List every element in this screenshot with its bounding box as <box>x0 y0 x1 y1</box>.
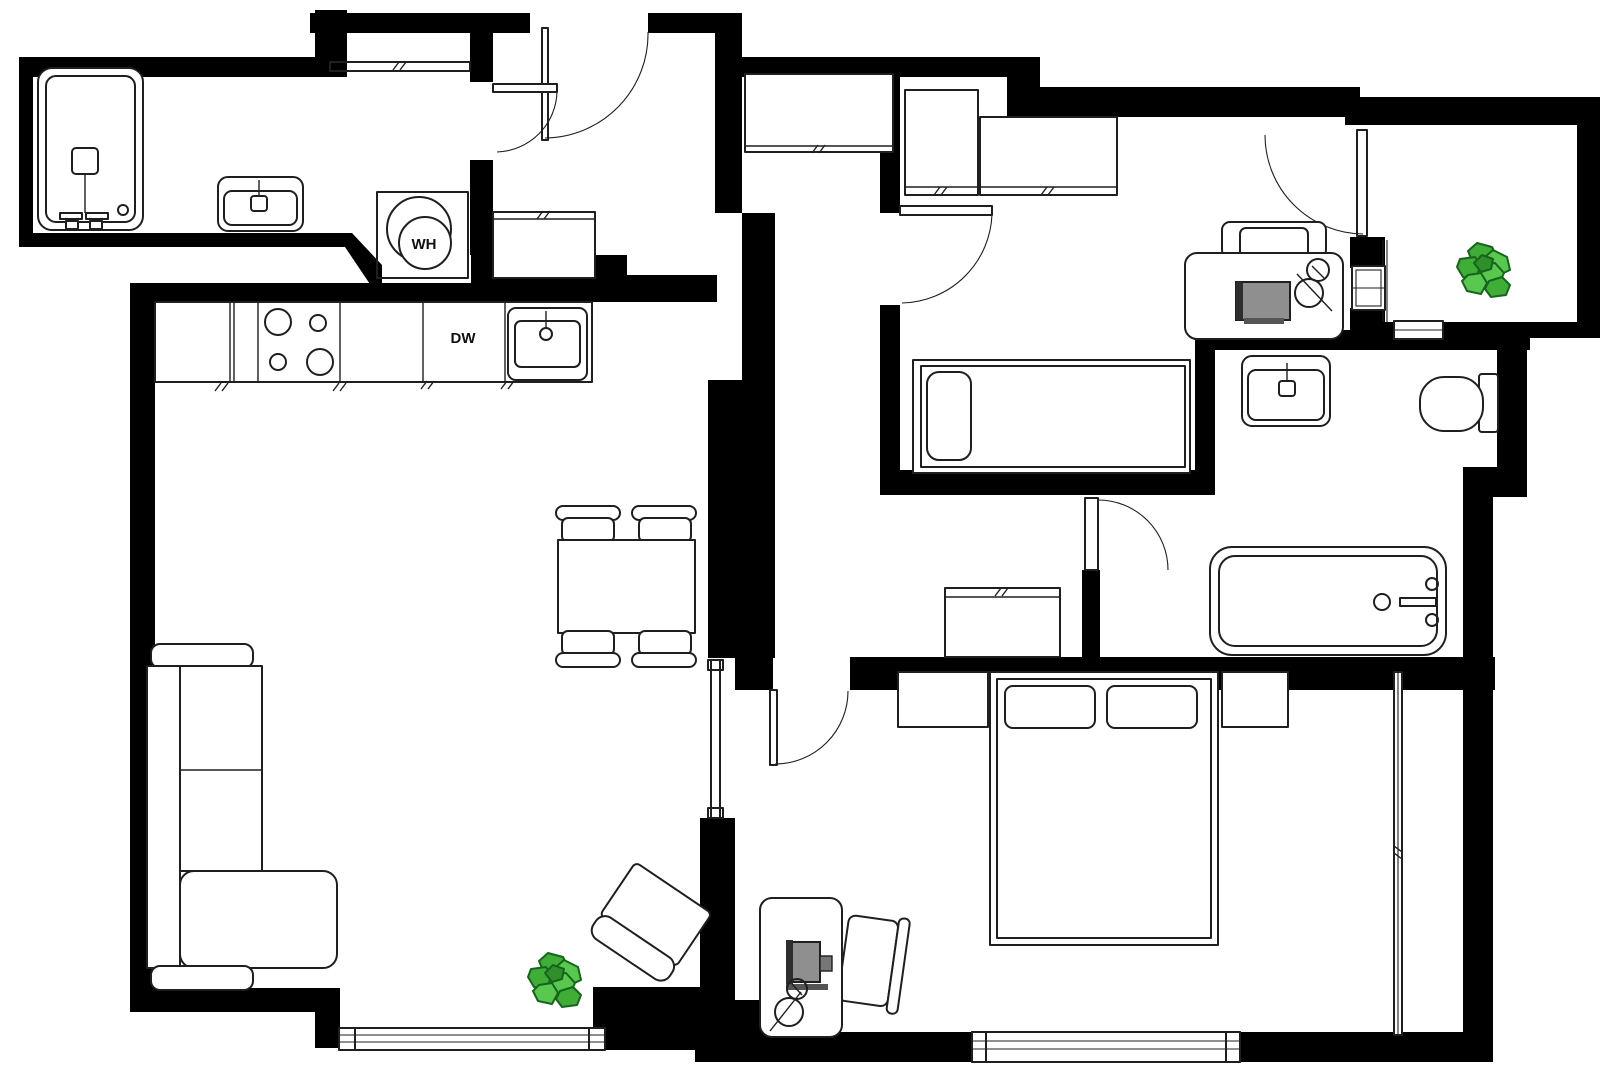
nightstand-left <box>898 672 988 727</box>
balcony-door <box>1265 130 1367 236</box>
entry-closet <box>493 211 595 278</box>
floor-plan-canvas: WH DW <box>0 0 1600 1076</box>
window-bedroom1-east <box>1352 266 1385 310</box>
dining-chair <box>556 653 620 667</box>
plant-balcony <box>1457 243 1510 297</box>
pillow <box>1107 686 1197 728</box>
dining-chair <box>562 631 614 655</box>
window-living-south <box>339 1028 605 1050</box>
water-heater-icon: WH <box>377 192 468 278</box>
dining-chair <box>639 518 691 542</box>
dining-chair <box>632 653 696 667</box>
bedroom1-closet-b <box>980 117 1117 195</box>
pillow <box>927 372 971 460</box>
glass-wall-bedroom2-east <box>1394 672 1402 1035</box>
water-heater-label: WH <box>412 236 437 253</box>
single-bed <box>913 360 1190 473</box>
bedroom1-closet-a <box>905 90 978 195</box>
window-bedroom2-south <box>972 1032 1240 1062</box>
dining-chair <box>562 518 614 542</box>
dishwasher-label: DW <box>451 330 477 347</box>
entry-top-closet <box>330 62 470 71</box>
desk-chair-bedroom2 <box>837 911 911 1015</box>
hallway-closet-north <box>745 74 893 153</box>
dining-table <box>558 540 695 633</box>
window-balcony-south <box>1394 321 1443 339</box>
pillow <box>1005 686 1095 728</box>
nightstand-right <box>1222 672 1288 727</box>
shower-icon <box>38 68 143 230</box>
toilet-icon <box>1420 374 1498 432</box>
dishwasher: DW <box>451 330 477 347</box>
kitchen-sink-icon <box>508 308 587 380</box>
sofa-icon <box>147 644 337 990</box>
bathroom-door <box>1085 498 1168 570</box>
dining-chair <box>639 631 691 655</box>
laundry-sink-icon <box>218 177 303 231</box>
hallway-closet-south <box>945 588 1060 657</box>
floor-plan-page: WH DW <box>0 0 1600 1076</box>
dining-set <box>556 506 696 667</box>
plant-living-room <box>528 953 581 1007</box>
armchair-icon <box>587 862 711 985</box>
bedroom1-door <box>900 206 992 303</box>
bathtub-icon <box>1210 547 1446 655</box>
bathroom-sink-icon <box>1242 356 1330 426</box>
monitor-icon-bedroom1 <box>1236 282 1290 324</box>
double-bed <box>990 672 1218 945</box>
glass-partition-living <box>708 660 723 818</box>
bedroom2-door <box>770 690 848 765</box>
